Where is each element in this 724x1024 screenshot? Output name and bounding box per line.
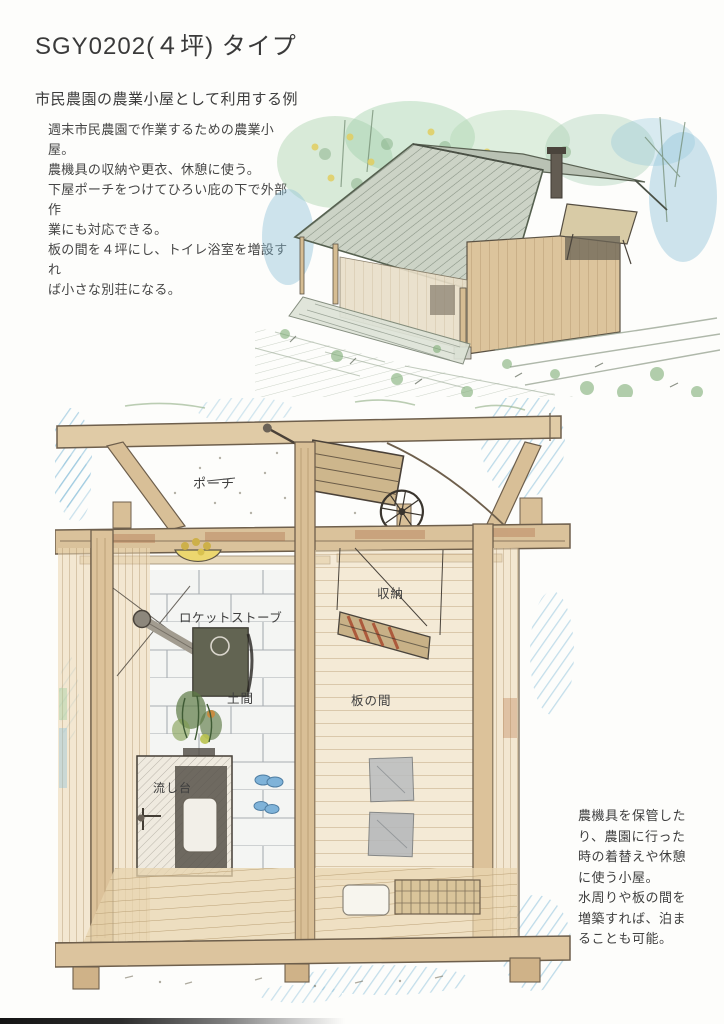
page-title: SGY0202(４坪) タイプ [35, 26, 297, 61]
wash-basin [343, 885, 389, 915]
porch-post [300, 237, 304, 294]
cushion [368, 812, 413, 857]
slipper [267, 777, 283, 787]
itanoma-label: 板の間 [351, 694, 392, 708]
side-note-text: 農機具を保管した り、農園に行った 時の着替えや休憩 に使う小屋。 水周りや板の… [578, 806, 714, 950]
chimney [547, 147, 566, 154]
sink-unit [137, 756, 232, 876]
scan-artifact-bar [0, 1018, 345, 1024]
footing [73, 967, 99, 989]
porch-post [460, 288, 466, 350]
rocket-stove-label: ロケットストーブ [179, 610, 282, 625]
catalog-page: SGY0202(４坪) タイプ 市民農園の農業小屋として利用する例 週末市民農園… [0, 0, 724, 1024]
sink-label: 流し台 [153, 780, 192, 795]
slipper [265, 805, 279, 814]
center-post [295, 442, 315, 950]
interior-illustration: ポーチ [55, 398, 575, 1003]
hut-illustration [255, 92, 720, 397]
porch-post [333, 244, 338, 304]
storage-label: 収納 [377, 587, 404, 601]
porch-doorway [430, 285, 455, 315]
footing [510, 958, 540, 982]
doma-label: 土間 [227, 692, 254, 706]
slatted-floor [395, 880, 480, 914]
footing [285, 964, 309, 982]
